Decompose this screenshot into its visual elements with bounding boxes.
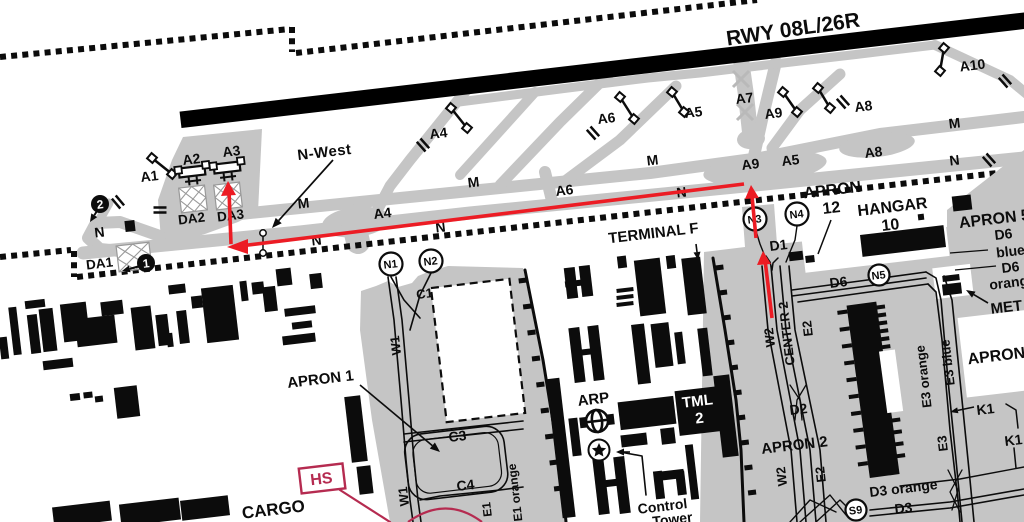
svg-text:A8: A8 — [864, 143, 884, 161]
svg-text:A9: A9 — [741, 155, 761, 173]
svg-text:A4: A4 — [429, 124, 449, 142]
svg-text:E1: E1 — [479, 501, 495, 518]
svg-text:A7: A7 — [735, 89, 755, 107]
svg-text:M: M — [467, 173, 480, 190]
svg-text:10: 10 — [881, 216, 901, 235]
svg-text:N: N — [948, 151, 960, 168]
svg-text:K1: K1 — [976, 400, 996, 418]
svg-text:D3: D3 — [894, 499, 914, 517]
svg-text:D6: D6 — [994, 225, 1014, 243]
svg-text:W1: W1 — [387, 335, 404, 356]
svg-text:N: N — [93, 223, 105, 240]
svg-text:TML: TML — [681, 391, 714, 411]
svg-text:DA1: DA1 — [85, 254, 114, 272]
svg-text:D1: D1 — [769, 236, 789, 254]
svg-text:A10: A10 — [959, 56, 987, 75]
svg-text:A6: A6 — [597, 109, 617, 127]
svg-text:S9: S9 — [848, 504, 863, 517]
svg-text:12: 12 — [822, 199, 842, 218]
svg-text:W1: W1 — [395, 486, 412, 507]
svg-text:D2: D2 — [789, 400, 809, 418]
svg-text:W2: W2 — [773, 466, 790, 487]
svg-text:DA2: DA2 — [177, 210, 206, 228]
svg-text:W2: W2 — [761, 327, 778, 348]
svg-text:A5: A5 — [781, 151, 801, 169]
svg-text:A8: A8 — [854, 97, 874, 115]
svg-text:A6: A6 — [555, 181, 575, 199]
svg-text:A1: A1 — [140, 167, 160, 185]
svg-text:E2: E2 — [799, 320, 816, 338]
svg-text:N5: N5 — [871, 269, 886, 283]
svg-text:C3: C3 — [448, 427, 468, 445]
svg-text:M: M — [948, 114, 961, 131]
svg-text:A9: A9 — [764, 104, 784, 122]
svg-text:C1: C1 — [415, 285, 433, 302]
svg-text:N2: N2 — [423, 255, 438, 269]
svg-text:D6: D6 — [829, 273, 849, 291]
svg-text:M: M — [646, 151, 659, 168]
svg-text:N: N — [310, 231, 322, 248]
svg-text:C4: C4 — [456, 476, 476, 494]
svg-text:E2: E2 — [812, 466, 829, 484]
svg-text:N4: N4 — [789, 208, 805, 222]
svg-text:K1: K1 — [1004, 431, 1024, 449]
svg-text:A4: A4 — [373, 204, 393, 222]
svg-text:E3: E3 — [934, 435, 951, 453]
svg-text:HS: HS — [309, 470, 333, 490]
svg-text:blue: blue — [995, 241, 1024, 260]
svg-text:N1: N1 — [383, 258, 398, 272]
